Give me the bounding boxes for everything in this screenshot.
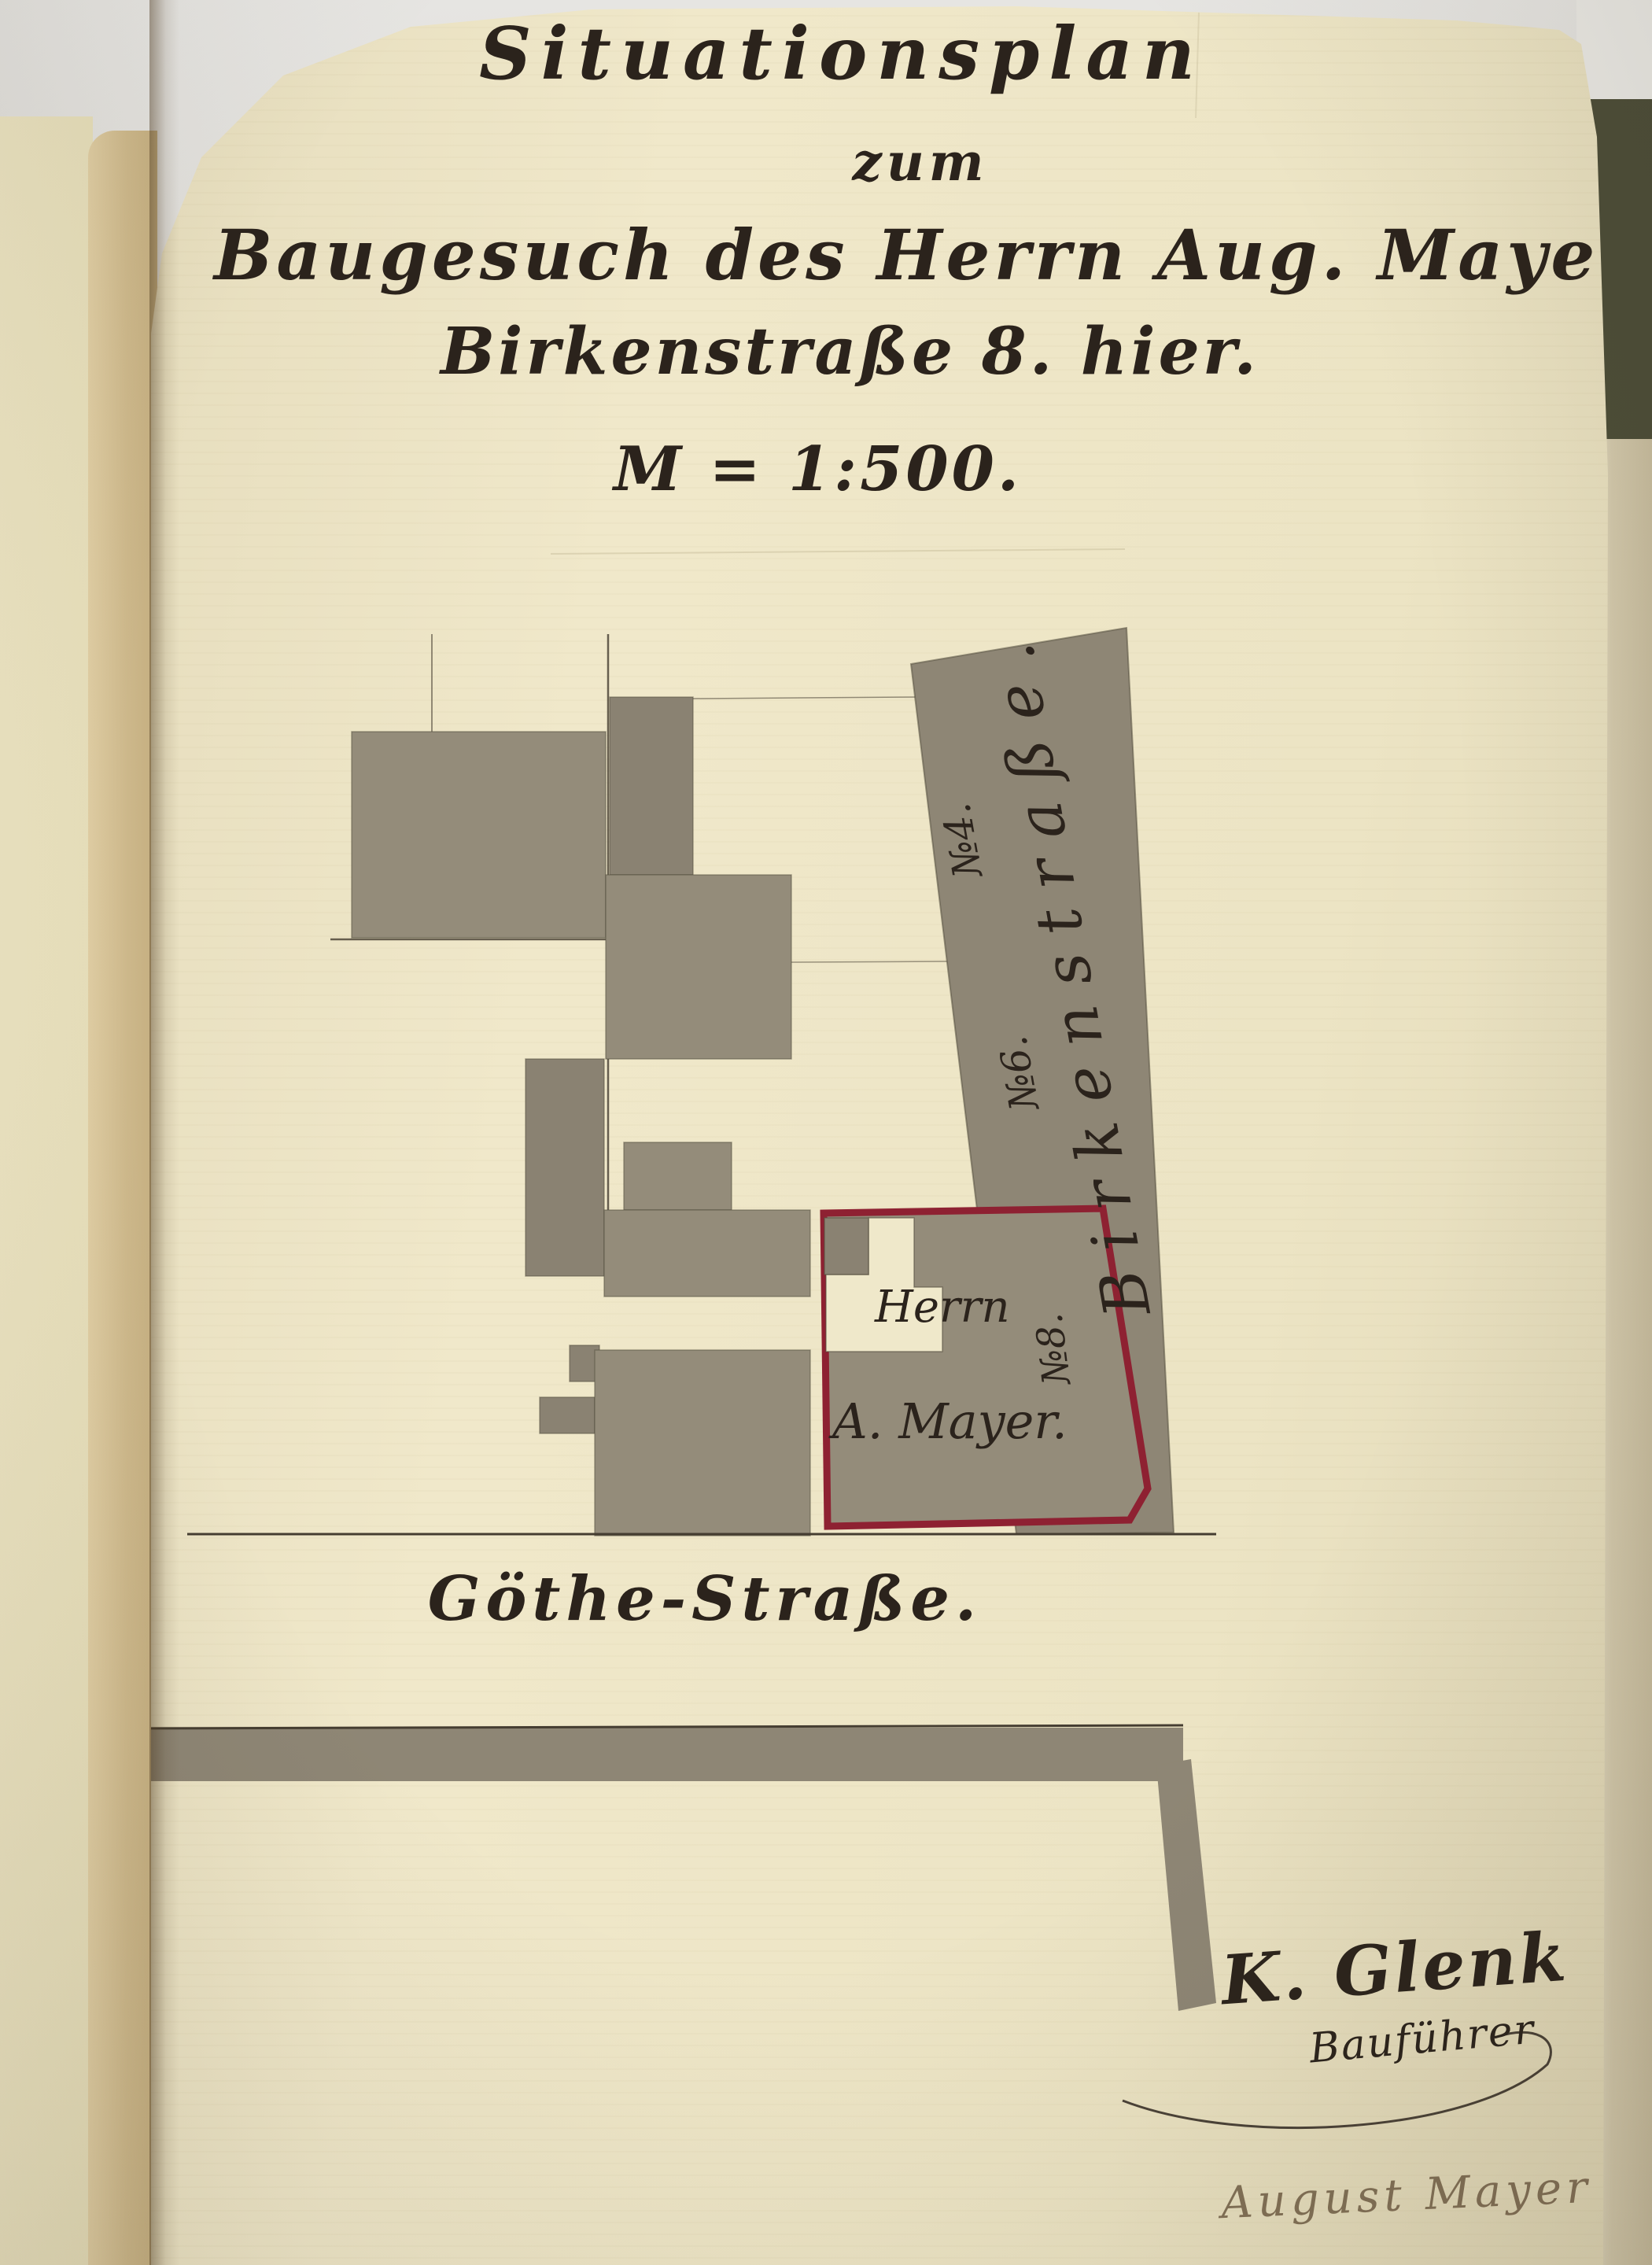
address-line: Birkenstraße 8. hier. [441, 316, 1243, 387]
building-block [352, 732, 606, 938]
street-band-vertical [1156, 1759, 1216, 2011]
building-block [595, 1350, 810, 1536]
application-line: Baugesuch des Herrn Aug. Mayer, [214, 217, 1583, 293]
building-block [525, 1059, 604, 1276]
book-gutter-shadow [149, 0, 179, 2265]
parcel-number-label: №8. [1027, 1311, 1079, 1389]
facing-page-edge [0, 116, 93, 2265]
boundary-line [693, 697, 919, 699]
book-fold-strip [88, 131, 157, 2265]
parcel-owner-line1: Herrn [874, 1282, 1010, 1333]
scale-note: M = 1:500. [614, 436, 975, 504]
building-block [606, 875, 791, 1059]
paper-rule-line [551, 549, 1125, 554]
plan-title: Situationsplan [464, 14, 1219, 94]
photo-of-document: №4. №6. Birkenstraße. Herrn A. Mayer. №8… [0, 0, 1652, 2265]
plan-subtitle: zum [802, 134, 1038, 191]
building-block [604, 1210, 810, 1297]
document-page: №4. №6. Birkenstraße. Herrn A. Mayer. №8… [151, 3, 1608, 2265]
street-label-goethestrasse: Göthe-Straße. [425, 1566, 985, 1633]
building-block [610, 697, 693, 875]
building-block [824, 1218, 868, 1275]
building-block [540, 1397, 595, 1433]
parcel-owner-line2: A. Mayer. [828, 1393, 1068, 1450]
street-band-horizontal [151, 1728, 1183, 1781]
building-block [624, 1142, 732, 1210]
